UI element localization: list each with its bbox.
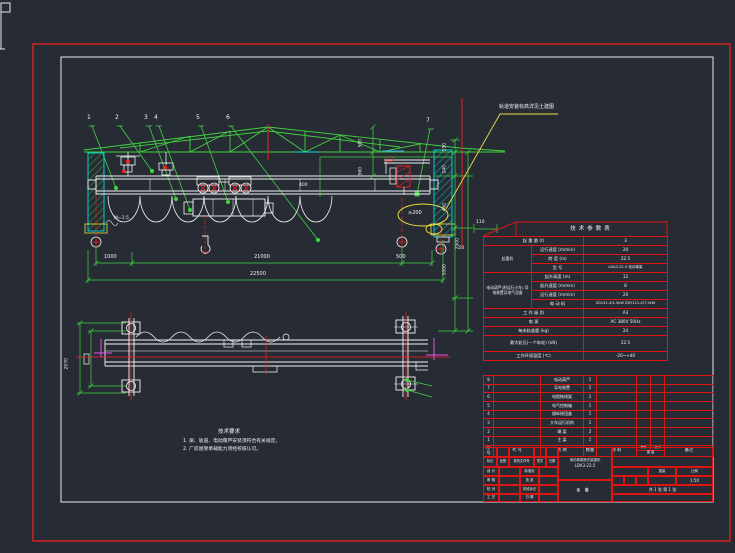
bom-no: 8 [484, 376, 494, 385]
bom-code [494, 393, 541, 402]
bom-wt [651, 436, 665, 445]
param-value: 22.5 [584, 336, 668, 352]
bom-material [597, 436, 637, 445]
dim-seg3: 500 [396, 255, 406, 260]
plan-view [76, 311, 450, 401]
sig-check: 审 核 [483, 476, 499, 485]
bom-no: 3 [484, 419, 494, 428]
bom-wu [637, 428, 651, 437]
bom-name: 导电装置 [541, 384, 584, 393]
bom-row: 3大车运行机构1 [484, 419, 714, 428]
param-label: 工 作 级 别 [484, 309, 584, 318]
stage-box [612, 476, 624, 485]
param-label: 电 源 [484, 318, 584, 327]
rev-cell [497, 447, 509, 457]
vdim-g: 2500 [457, 238, 462, 249]
sig-cell [539, 485, 558, 494]
bom-wt [651, 376, 665, 385]
bom-row: 5电气控制箱1 [484, 402, 714, 411]
bottom-cell [612, 494, 713, 502]
bom-code [494, 402, 541, 411]
sig-approve: 批 准 [520, 476, 539, 485]
bom-table: 8电动葫芦1 7导电装置1 6电缆拖线架1 5电气控制箱1 4操纵按钮盒1 3大… [483, 375, 714, 457]
rev-cell [534, 447, 546, 457]
rev-label-docno: 更改文件号 [509, 457, 534, 467]
stage-box [636, 476, 648, 485]
bom-wt [651, 428, 665, 437]
drawing-name: 总图 [558, 480, 612, 502]
bom-material [597, 393, 637, 402]
cad-sheet: 1 2 3 4 5 6 7 轨道安装标高详见土建图 1000 21000 500… [0, 0, 735, 553]
rail-note: M=1:5 [114, 217, 129, 222]
bom-wu [637, 402, 651, 411]
bom-code [494, 428, 541, 437]
rev-label-mark: 标记 [483, 457, 497, 467]
bom-name: 大车运行机构 [541, 419, 584, 428]
callout-2: 2 [115, 115, 119, 121]
param-value: -20~+40 [584, 352, 668, 361]
param-label: 运行速度 (m/min) [532, 291, 584, 300]
param-table-title: 技术参数表 [516, 223, 667, 235]
callout-6: 6 [226, 115, 230, 121]
corner-artifact [0, 3, 10, 49]
param-value: 12 [584, 273, 668, 282]
bom-material [597, 376, 637, 385]
drawing-title-line2: LDA3-22.5 [575, 464, 596, 468]
sig-cell [539, 476, 558, 485]
sig-cell [539, 494, 558, 502]
rev-cell [546, 447, 558, 457]
dim-seg1: 1000 [104, 255, 117, 260]
bom-remark [665, 428, 714, 437]
bom-qty: 2 [584, 428, 597, 437]
main-girder-front [88, 176, 438, 194]
param-label: 跨 度 (m) [532, 255, 584, 264]
scale-label: 比例 [676, 467, 713, 476]
dim-overall: 22500 [250, 272, 266, 277]
bom-qty: 1 [584, 393, 597, 402]
conductor-bracket-left [116, 152, 173, 176]
drawing-title: 电动单梁桥式起重机 LDA3-22.5 [558, 447, 612, 480]
bom-row: 8电动葫芦1 [484, 376, 714, 385]
param-label: 起升速度 (m/min) [532, 282, 584, 291]
vdim-a: 500 [360, 139, 365, 148]
stage-mark-cell [612, 467, 648, 476]
sig-cell [499, 476, 520, 485]
bom-wt [651, 393, 665, 402]
plan-vdim: 2070 [66, 358, 71, 369]
bom-wt [651, 410, 665, 419]
param-value: A3 [584, 309, 668, 318]
bom-wu [637, 419, 651, 428]
param-group: 电动葫芦(附运行小车) 导电装置及电气设备 [484, 273, 532, 309]
bom-row: 2端 梁2 [484, 428, 714, 437]
bom-wu [637, 410, 651, 419]
festoon-cable-front [108, 196, 332, 222]
bom-remark [665, 419, 714, 428]
bom-qty: 1 [584, 376, 597, 385]
vdim-e: 400 [444, 203, 449, 212]
param-label: 起 重 量 (t) [484, 237, 584, 246]
rev-label-count: 处数 [497, 457, 509, 467]
hook [201, 216, 210, 253]
bom-row: 4操纵按钮盒1 [484, 410, 714, 419]
bom-name: 主 梁 [541, 436, 584, 445]
rev-label-date: 日期 [546, 457, 558, 467]
bom-material [597, 384, 637, 393]
bom-row: 6电缆拖线架1 [484, 393, 714, 402]
sig-stage: 阶段标记 [520, 485, 539, 494]
sig-process: 工 艺 [483, 494, 499, 502]
param-label: 起升高度 (m) [532, 273, 584, 282]
callout-4: 4 [154, 115, 158, 121]
bom-material [597, 428, 637, 437]
bom-material [597, 402, 637, 411]
bom-qty: 1 [584, 410, 597, 419]
bom-no: 1 [484, 436, 494, 445]
callout-7: 7 [426, 118, 430, 124]
bom-remark [665, 410, 714, 419]
bom-remark [665, 402, 714, 411]
bom-no: 5 [484, 402, 494, 411]
bom-code [494, 410, 541, 419]
bom-code [494, 376, 541, 385]
bom-wu [637, 393, 651, 402]
bom-no: 4 [484, 410, 494, 419]
bom-remark [665, 393, 714, 402]
weight-label: 重量 [648, 467, 676, 476]
bom-wu [637, 384, 651, 393]
param-label: 每米轨道重 (kg) [484, 327, 584, 336]
bom-remark [665, 376, 714, 385]
bom-remark [665, 436, 714, 445]
bom-name: 电缆拖线架 [541, 393, 584, 402]
param-label: 最大轮压(一个车轮) (kN) [484, 336, 584, 352]
dim-seg2: 21000 [254, 255, 270, 260]
dim-mid: 400 [299, 184, 308, 189]
bom-no: 6 [484, 393, 494, 402]
drawing-title-line1: 电动单梁桥式起重机 [570, 459, 601, 462]
param-value: 22.5 [584, 255, 668, 264]
param-value: 24 [584, 327, 668, 336]
sig-cell [499, 494, 520, 502]
rev-cell [483, 447, 497, 457]
param-label: 型 号 [532, 264, 584, 273]
sig-standard: 标准化 [520, 467, 539, 476]
bom-name: 操纵按钮盒 [541, 410, 584, 419]
sig-cell [499, 467, 520, 476]
bom-name: 端 梁 [541, 428, 584, 437]
bom-qty: 1 [584, 402, 597, 411]
weight-value [648, 476, 676, 485]
param-value: ZD141-4/1.5kW ZDY121-4/7.5kW [584, 300, 668, 309]
bom-remark [665, 384, 714, 393]
note-line-1: 1. 梁、轨道、电动葫芦安装须符合有关规定。 [183, 440, 280, 445]
bom-material [597, 410, 637, 419]
bom-row: 7导电装置1 [484, 384, 714, 393]
vdim-b: 560 [360, 167, 365, 176]
param-table: 起 重 量 (t)3 起重机运行速度 (m/min)20 跨 度 (m)22.5… [483, 236, 668, 361]
vdim-f: 1000 [444, 264, 449, 275]
bom-wu [637, 376, 651, 385]
sig-date: 日 期 [520, 494, 539, 502]
callout-5: 5 [196, 115, 200, 121]
stage-box [624, 476, 636, 485]
bom-wu [637, 436, 651, 445]
param-group: 起重机 [484, 246, 532, 273]
bom-qty: 1 [584, 384, 597, 393]
bom-code [494, 384, 541, 393]
dim-110: 110 [476, 221, 485, 226]
note-line-2: 2. 厂房屋架承载能力须经校核认可。 [183, 448, 261, 453]
rev-label-sign: 签字 [534, 457, 546, 467]
scale-value: 1:50 [676, 476, 713, 485]
callout-1: 1 [87, 115, 91, 121]
sig-cell [539, 467, 558, 476]
bom-wt [651, 419, 665, 428]
param-label: 工作环境温度 (℃) [484, 352, 584, 361]
elevation-annotation: 轨道安装标高详见土建图 [499, 105, 554, 110]
bom-qty: 1 [584, 419, 597, 428]
param-value: 20 [584, 246, 668, 255]
title-block: 标记 处数 更改文件号 签字 日期 设 计 标准化 审 核 批 准 校 对 阶段… [483, 447, 713, 502]
clearance-note: ≥200 [408, 211, 422, 216]
notes-title: 技术要求 [218, 430, 240, 436]
rev-cell [509, 447, 534, 457]
callout-3: 3 [144, 115, 148, 121]
param-value: AC 380V 50Hz [584, 318, 668, 327]
vdim-d: 240 [444, 165, 449, 174]
bom-code [494, 419, 541, 428]
param-label: 运行速度 (m/min) [532, 246, 584, 255]
bom-no: 2 [484, 428, 494, 437]
hoist-trolley [184, 177, 273, 253]
vdim-c: 150 [444, 143, 449, 152]
sheet-info: 共 1 张 第 1 张 [612, 485, 713, 494]
param-value: LDA3-22.5 电动单梁 [584, 264, 668, 273]
bom-name: 电动葫芦 [541, 376, 584, 385]
param-label: 电 动 机 [532, 300, 584, 309]
elevation-leader [446, 114, 558, 209]
sig-design: 设 计 [483, 467, 499, 476]
bom-wt [651, 402, 665, 411]
param-value: 20 [584, 291, 668, 300]
param-value: 3 [584, 237, 668, 246]
bom-no: 7 [484, 384, 494, 393]
bom-material [597, 419, 637, 428]
bom-code [494, 436, 541, 445]
sig-cell [499, 485, 520, 494]
bom-row: 1主 梁1 [484, 436, 714, 445]
bom-name: 电气控制箱 [541, 402, 584, 411]
sig-proof: 校 对 [483, 485, 499, 494]
bom-qty: 1 [584, 436, 597, 445]
drawing-number-cell [612, 447, 713, 467]
bom-wt [651, 384, 665, 393]
param-value: 8 [584, 282, 668, 291]
